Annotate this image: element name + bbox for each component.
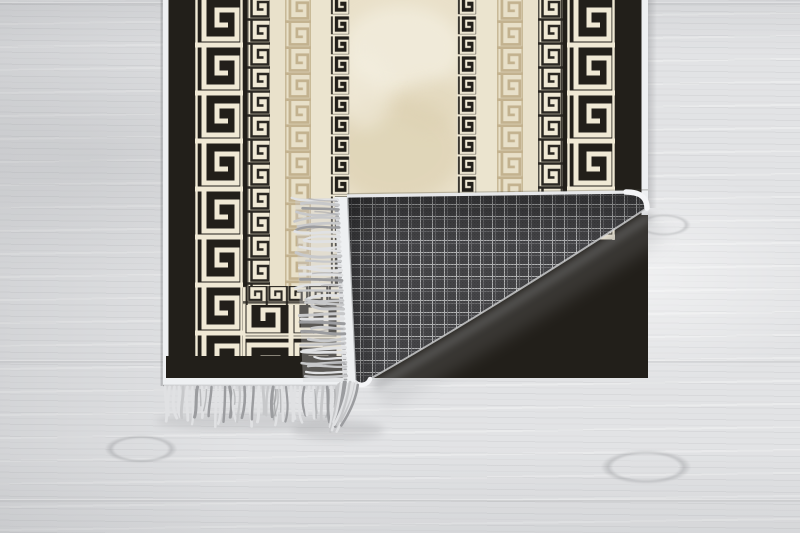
left-binding (163, 0, 169, 385)
right-binding (642, 0, 649, 215)
rug-product-photo (0, 0, 800, 533)
left-large-key (195, 0, 243, 358)
rug-illustration (0, 0, 800, 533)
left-small-key-dark (247, 0, 270, 286)
center-marble-texture (330, 6, 464, 202)
left-cream-strip (270, 0, 285, 286)
